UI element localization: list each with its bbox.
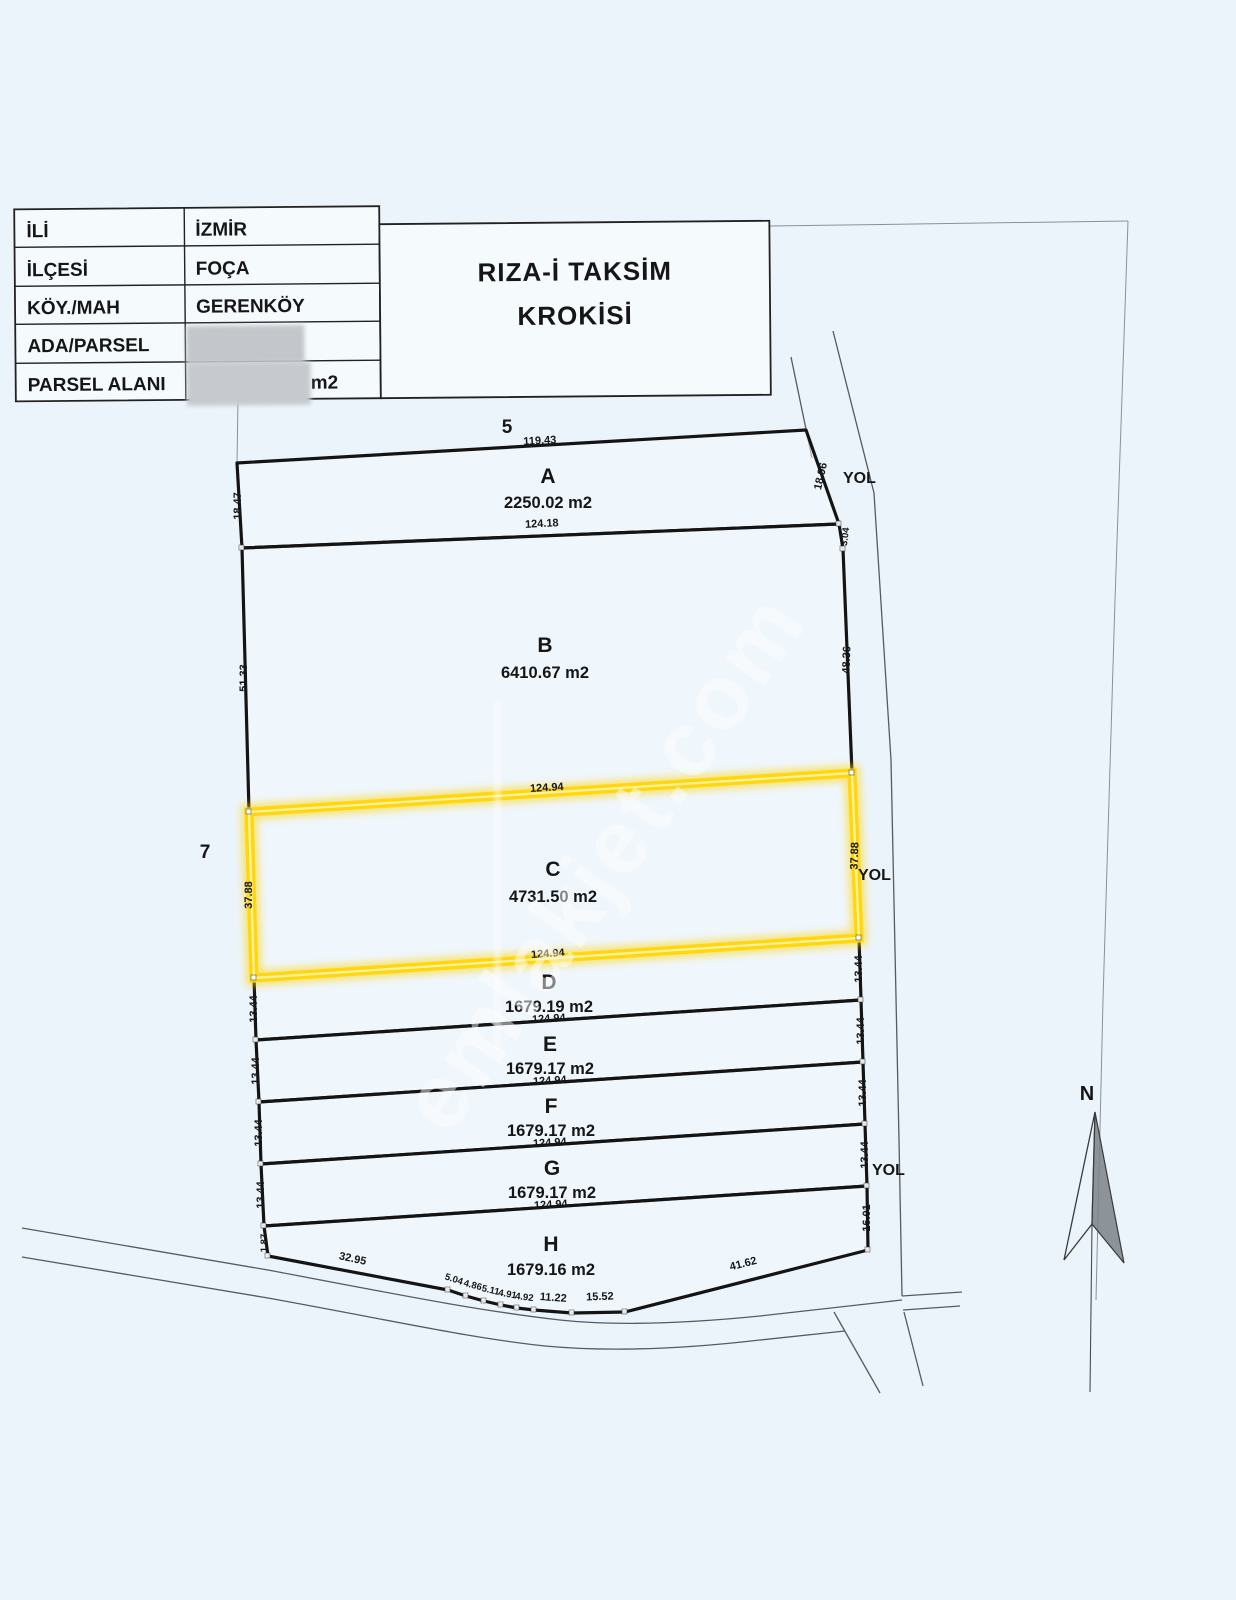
- table-label-parselalani: PARSEL ALANI: [28, 374, 166, 396]
- dim-bottom-7: 15.52: [586, 1291, 614, 1304]
- dim-bottom-5: 4.92: [514, 1291, 534, 1304]
- road-label-top: YOL: [843, 470, 876, 487]
- dim-a-top: 119.43: [523, 434, 557, 448]
- parcel-a-label: A: [540, 465, 555, 488]
- sketch-canvas: A 2250.02 m2 B 6410.67 m2 C 4731.50 m2 D…: [0, 0, 1236, 1600]
- dim-c-left: 37.88: [243, 881, 255, 909]
- dim-g-right: 13.44: [859, 1140, 871, 1168]
- table-value-unit-m2: m2: [311, 373, 339, 394]
- road-label-middle: YOL: [858, 867, 891, 884]
- dim-f-left: 13.44: [253, 1118, 265, 1146]
- table-value-ili: İZMİR: [195, 219, 247, 240]
- parcel-h-label: H: [543, 1233, 558, 1256]
- dim-f-bottom: 124.94: [533, 1136, 568, 1150]
- dim-e-bottom: 124.94: [533, 1074, 568, 1088]
- parcel-h-area: 1679.16 m2: [507, 1261, 595, 1279]
- dim-a-left: 18.47: [232, 492, 244, 520]
- table-label-adaparsel: ADA/PARSEL: [27, 335, 150, 357]
- neighbor-parcel-5: 5: [502, 417, 513, 438]
- redaction-boxes: [186, 325, 311, 406]
- dim-d-left: 13.44: [248, 994, 260, 1022]
- table-value-koymah: GERENKÖY: [196, 296, 305, 318]
- dim-g-bottom: 124.94: [534, 1198, 569, 1212]
- document-title-line2: KROKİSİ: [517, 300, 633, 331]
- parcel-a-area: 2250.02 m2: [504, 494, 592, 512]
- parcel-b-label: B: [537, 634, 552, 657]
- dim-a-right-tick: 3.04: [839, 526, 852, 546]
- parcel-e-label: E: [543, 1033, 557, 1056]
- table-label-ilcesi: İLÇESİ: [27, 260, 88, 282]
- parcel-b-area: 6410.67 m2: [501, 664, 589, 682]
- dim-c-top: 124.94: [530, 781, 565, 795]
- parcel-g-label: G: [544, 1157, 560, 1180]
- dim-g-left: 13.44: [255, 1180, 267, 1208]
- dim-b-right: 48.36: [841, 646, 854, 674]
- dim-e-right: 13.44: [855, 1016, 867, 1044]
- dim-bottom-6: 11.22: [539, 1291, 567, 1305]
- road-label-bottom: YOL: [872, 1162, 905, 1179]
- header-block: İLİ İZMİR İLÇESİ FOÇA KÖY./MAH GERENKÖY …: [14, 203, 771, 408]
- dim-c-right: 37.88: [849, 842, 862, 870]
- dim-e-left: 13.44: [250, 1056, 262, 1084]
- parcel-f-label: F: [545, 1095, 558, 1118]
- dim-f-right: 13.44: [857, 1078, 869, 1106]
- dim-h-left: 1.87: [259, 1234, 270, 1253]
- dim-d-right: 13.44: [853, 954, 865, 982]
- dim-a-bottom: 124.18: [525, 517, 559, 531]
- cadastral-sketch-document: A 2250.02 m2 B 6410.67 m2 C 4731.50 m2 D…: [0, 0, 1236, 1600]
- dim-h-right: 16.01: [861, 1204, 873, 1232]
- table-label-koymah: KÖY./MAH: [27, 297, 120, 319]
- neighbor-parcel-7: 7: [200, 842, 211, 863]
- document-title-line1: RIZA-İ TAKSİM: [477, 256, 672, 288]
- table-label-ili: İLİ: [26, 221, 48, 242]
- dim-b-left: 51.33: [238, 664, 250, 692]
- table-value-ilcesi: FOÇA: [196, 258, 250, 279]
- north-label: N: [1080, 1083, 1094, 1105]
